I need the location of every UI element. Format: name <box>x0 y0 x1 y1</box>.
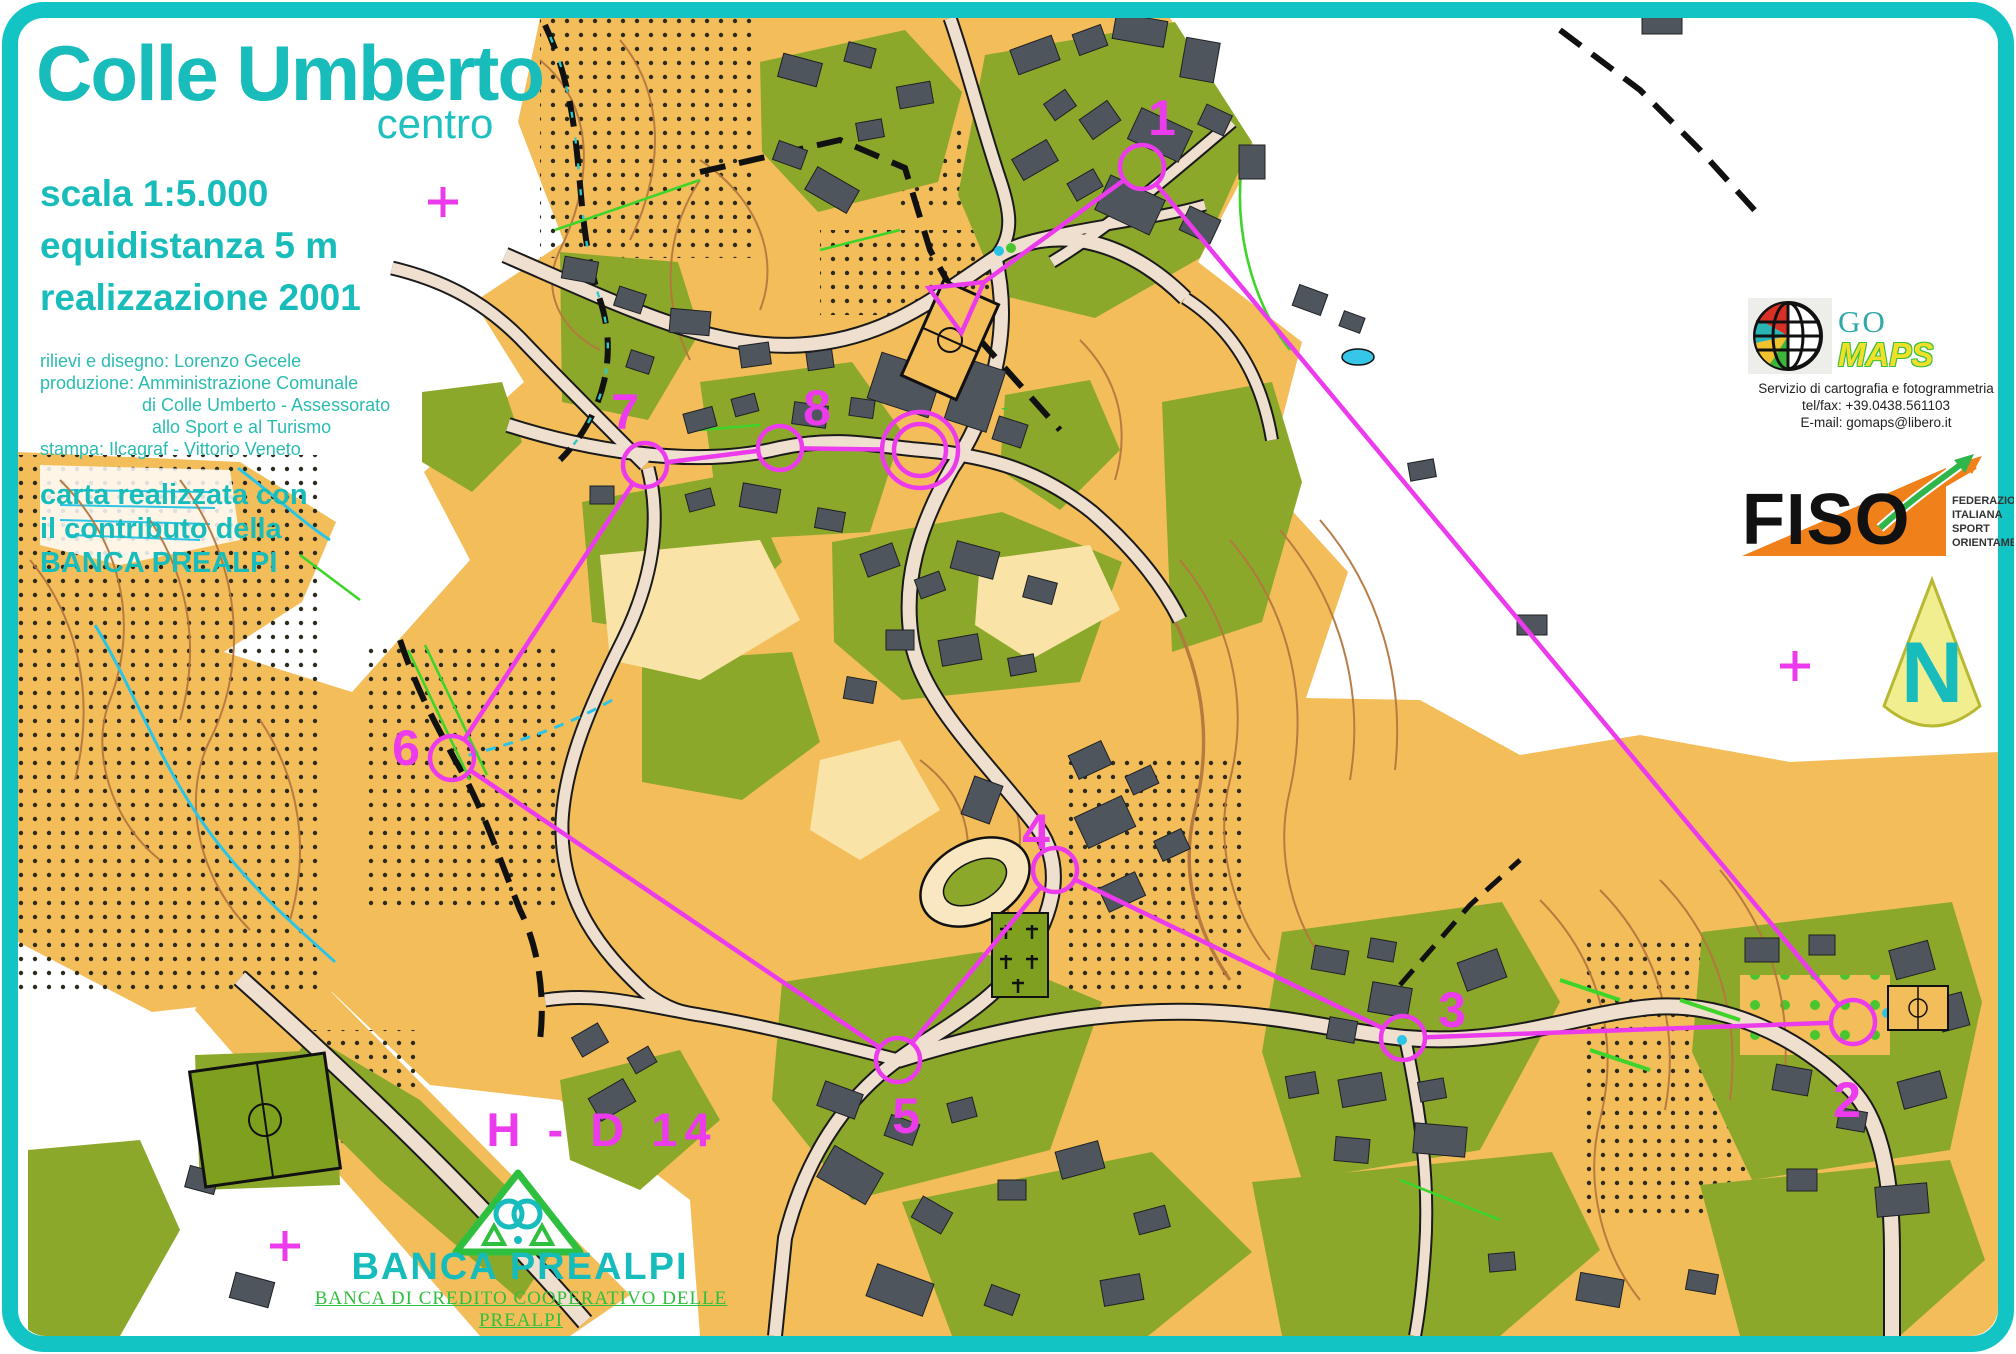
fiso-logo-icon: FISO FEDERAZIONE ITALIANA SPORT ORIENTAM… <box>1738 452 2014 570</box>
control-number: 1 <box>1148 90 1176 146</box>
gomaps-globe-icon <box>1748 298 1832 376</box>
edition-line: realizzazione 2001 <box>40 272 361 324</box>
credits-block: rilievi e disegno: Lorenzo Gecele produz… <box>40 350 390 460</box>
fiso-sub-line: ORIENTAMENTO <box>1952 537 2014 549</box>
credit-line: allo Sport e al Turismo <box>40 416 390 438</box>
contribution-block: carta realizzata con il contributo della… <box>40 478 308 580</box>
control-number: 7 <box>611 384 639 440</box>
course-leg <box>802 448 882 449</box>
court-near-control2 <box>1888 986 1948 1030</box>
contribution-line: BANCA PREALPI <box>40 546 308 580</box>
credit-line: produzione: Amministrazione Comunale <box>40 372 390 394</box>
control-number: 8 <box>803 380 831 436</box>
cemetery <box>992 913 1048 997</box>
gomaps-email-line: E-mail: gomaps@libero.it <box>1748 414 2004 431</box>
banca-prealpi-subtitle: BANCA DI CREDITO COOPERATIVO DELLE PREAL… <box>278 1288 764 1332</box>
gomaps-service-line: Servizio di cartografia e fotogrammetria <box>1748 380 2004 397</box>
equidistance-line: equidistanza 5 m <box>40 220 361 272</box>
control-number: 5 <box>892 1088 920 1144</box>
fiso-sub-line: ITALIANA <box>1952 509 2003 521</box>
contribution-line: il contributo della <box>40 512 308 546</box>
svg-text:FISO: FISO <box>1742 479 1911 560</box>
gomaps-word-maps: MAPS <box>1838 336 1933 374</box>
north-arrow: N <box>1864 574 2004 754</box>
control-number: 2 <box>1833 1072 1861 1128</box>
orienteering-map-sheet: 12345678 Colle Umberto centro scala 1:5.… <box>0 0 2016 1354</box>
fiso-sub-line: FEDERAZIONE <box>1952 495 2014 507</box>
banca-prealpi-name: BANCA PREALPI <box>300 1246 740 1289</box>
soccer-field-southwest <box>190 1053 341 1187</box>
fiso-logo-block: FISO FEDERAZIONE ITALIANA SPORT ORIENTAM… <box>1738 452 2014 575</box>
north-letter: N <box>1901 625 1963 721</box>
fiso-sub-line: SPORT <box>1952 523 1990 535</box>
gomaps-word-go: GO <box>1838 304 1933 340</box>
north-arrow-icon: N <box>1864 574 2004 749</box>
control-number: 6 <box>392 720 420 776</box>
scale-line: scala 1:5.000 <box>40 168 361 220</box>
control-number: 3 <box>1438 982 1466 1038</box>
control-number: 4 <box>1022 804 1050 860</box>
credit-line: rilievi e disegno: Lorenzo Gecele <box>40 350 390 372</box>
map-subtitle: centro <box>340 100 530 148</box>
gomaps-phone-line: tel/fax: +39.0438.561103 <box>1748 397 2004 414</box>
credit-line: stampa: Ilcagraf - Vittorio Veneto <box>40 438 390 460</box>
credit-line: di Colle Umberto - Assessorato <box>40 394 390 416</box>
course-class-label: H - D 14 <box>452 1102 752 1157</box>
gomaps-logo-block: GO MAPS Servizio di cartografia e fotogr… <box>1748 298 2008 431</box>
contribution-line: carta realizzata con <box>40 478 308 512</box>
scale-block: scala 1:5.000 equidistanza 5 m realizzaz… <box>40 168 361 324</box>
